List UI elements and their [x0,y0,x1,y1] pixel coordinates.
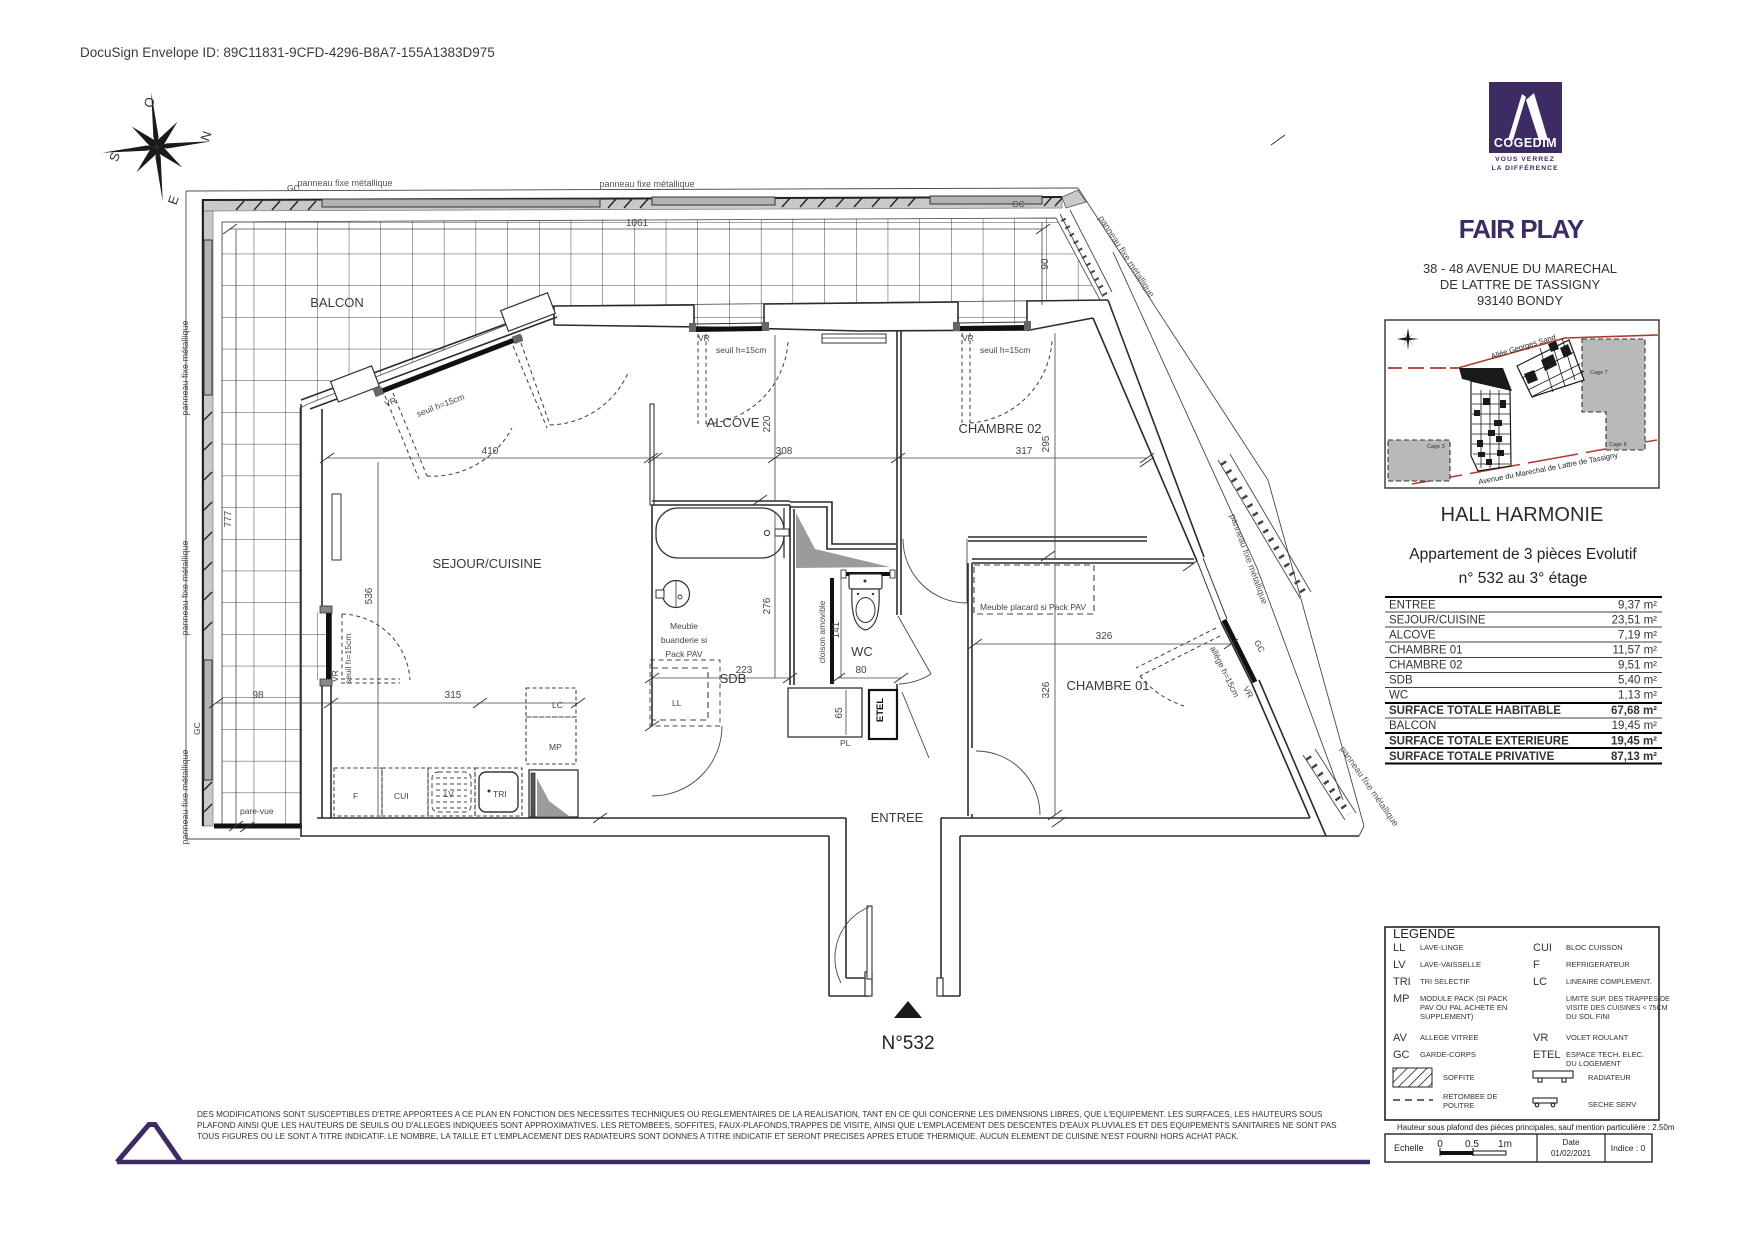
svg-text:ALLEGE VITREE: ALLEGE VITREE [1420,1033,1478,1042]
svg-text:90: 90 [1040,258,1051,270]
svg-text:1061: 1061 [626,218,649,229]
svg-text:1,13 m²: 1,13 m² [1618,690,1657,702]
svg-text:WC: WC [1389,690,1408,702]
svg-text:CUI: CUI [394,791,409,801]
svg-text:TRI SELECTIF: TRI SELECTIF [1420,977,1470,986]
svg-text:VR: VR [330,670,340,682]
svg-text:141: 141 [831,621,842,638]
svg-text:410: 410 [482,446,499,457]
svg-text:POUTRE: POUTRE [1443,1101,1474,1110]
svg-text:SDB: SDB [1389,675,1413,687]
svg-text:CHAMBRE 02: CHAMBRE 02 [1389,660,1463,672]
svg-text:ALCOVE: ALCOVE [1389,630,1436,642]
svg-text:Hauteur sous plafond des pièce: Hauteur sous plafond des pièces principa… [1397,1123,1675,1132]
svg-text:BLOC CUISSON: BLOC CUISSON [1566,943,1623,952]
svg-text:panneau fixe métallique: panneau fixe métallique [599,179,694,189]
svg-text:9,51 m²: 9,51 m² [1618,660,1657,672]
svg-text:23,51 m²: 23,51 m² [1612,615,1658,627]
svg-text:326: 326 [1096,631,1113,642]
svg-text:SUPPLEMENT): SUPPLEMENT) [1420,1012,1474,1021]
svg-text:REFRIGERATEUR: REFRIGERATEUR [1566,960,1630,969]
svg-text:CHAMBRE 02: CHAMBRE 02 [958,421,1041,436]
svg-text:1m: 1m [1498,1139,1512,1150]
svg-text:LA DIFFÉRENCE: LA DIFFÉRENCE [1491,163,1558,172]
svg-text:SURFACE TOTALE HABITABLE: SURFACE TOTALE HABITABLE [1389,705,1561,717]
svg-text:93140 BONDY: 93140 BONDY [1477,293,1563,308]
svg-text:326: 326 [1041,681,1052,698]
svg-text:ESPACE TECH. ELEC.: ESPACE TECH. ELEC. [1566,1050,1644,1059]
svg-text:MODULE PACK (SI PACK: MODULE PACK (SI PACK [1420,994,1508,1003]
svg-text:LV: LV [1393,959,1406,971]
svg-text:LV: LV [444,789,454,799]
svg-text:PL: PL [840,738,851,748]
svg-text:315: 315 [445,690,462,701]
svg-text:DU SOL FINI: DU SOL FINI [1566,1012,1610,1021]
svg-text:cloison amovible: cloison amovible [817,600,827,663]
svg-text:buanderie si: buanderie si [661,635,707,645]
svg-text:CUI: CUI [1533,942,1552,954]
svg-text:Meuble placard si Pack PAV: Meuble placard si Pack PAV [980,602,1086,612]
svg-text:SURFACE TOTALE EXTERIEURE: SURFACE TOTALE EXTERIEURE [1389,736,1569,748]
svg-text:AV: AV [1393,1032,1408,1044]
svg-text:n° 532 au 3° étage: n° 532 au 3° étage [1459,570,1588,587]
svg-text:GC: GC [1012,199,1025,209]
svg-text:276: 276 [762,597,773,614]
svg-text:VR: VR [698,333,710,343]
svg-text:DU LOGEMENT: DU LOGEMENT [1566,1059,1621,1068]
svg-text:ENTREE: ENTREE [1389,600,1436,612]
svg-text:LINEAIRE COMPLEMENT.: LINEAIRE COMPLEMENT. [1566,978,1652,986]
svg-text:LAVE-LINGE: LAVE-LINGE [1420,943,1464,952]
svg-text:DocuSign Envelope ID: 89C11831: DocuSign Envelope ID: 89C11831-9CFD-4296… [80,45,495,60]
svg-text:ENTREE: ENTREE [871,810,924,825]
svg-text:LL: LL [1393,942,1405,954]
svg-text:GARDE-CORPS: GARDE-CORPS [1420,1050,1476,1059]
svg-text:19,45 m²: 19,45 m² [1611,736,1657,748]
svg-text:panneau fixe métallique: panneau fixe métallique [180,540,190,635]
svg-text:Cage 7: Cage 7 [1590,370,1608,376]
svg-text:GC: GC [192,722,202,735]
svg-text:DES MODIFICATIONS SONT SUSCEPT: DES MODIFICATIONS SONT SUSCEPTIBLES D'ET… [197,1110,1323,1119]
svg-text:N°532: N°532 [881,1033,934,1054]
svg-text:Date: Date [1563,1138,1580,1147]
svg-text:VR: VR [962,333,974,343]
svg-text:panneau fixe métallique: panneau fixe métallique [180,320,190,415]
svg-text:ALCOVE: ALCOVE [707,415,760,430]
svg-text:67,68 m²: 67,68 m² [1611,705,1657,717]
svg-text:VOLET ROULANT: VOLET ROULANT [1566,1033,1629,1042]
svg-text:SOFFITE: SOFFITE [1443,1073,1475,1082]
svg-text:F: F [1533,959,1540,971]
svg-text:CHAMBRE 01: CHAMBRE 01 [1389,645,1463,657]
svg-text:F: F [353,791,358,801]
svg-text:LL: LL [672,698,682,708]
svg-text:TOUS FIGURES OU LE SONT A TITR: TOUS FIGURES OU LE SONT A TITRE INDICATI… [197,1132,1239,1141]
svg-text:LC: LC [552,700,563,710]
svg-text:19,45 m²: 19,45 m² [1612,720,1658,732]
svg-text:VR: VR [1533,1032,1548,1044]
svg-text:SURFACE TOTALE PRIVATIVE: SURFACE TOTALE PRIVATIVE [1389,751,1555,763]
svg-text:5,40 m²: 5,40 m² [1618,675,1657,687]
svg-text:Cage 6: Cage 6 [1609,442,1627,448]
svg-text:Meuble: Meuble [670,621,698,631]
svg-text:CHAMBRE 01: CHAMBRE 01 [1066,678,1149,693]
svg-text:38 - 48 AVENUE DU MARECHAL: 38 - 48 AVENUE DU MARECHAL [1423,261,1617,276]
svg-text:01/02/2021: 01/02/2021 [1551,1149,1592,1158]
svg-text:Cage 3: Cage 3 [1427,444,1445,450]
svg-text:COGEDIM: COGEDIM [1494,136,1557,150]
svg-text:7,19 m²: 7,19 m² [1618,630,1657,642]
svg-text:RADIATEUR: RADIATEUR [1588,1073,1631,1082]
svg-text:DE LATTRE DE TASSIGNY: DE LATTRE DE TASSIGNY [1440,277,1601,292]
svg-text:PLAFOND AINSI QUE LES HAUTEURS: PLAFOND AINSI QUE LES HAUTEURS DE SEUILS… [197,1121,1337,1130]
svg-text:GC: GC [1393,1049,1410,1061]
svg-text:seuil h=15cm: seuil h=15cm [343,634,353,684]
svg-text:TRI: TRI [1393,976,1411,988]
svg-text:MP: MP [1393,993,1410,1005]
svg-text:VISITE DES CUISINES < 75CM: VISITE DES CUISINES < 75CM [1566,1004,1668,1012]
svg-text:11,57 m²: 11,57 m² [1612,645,1657,657]
svg-text:TRI: TRI [493,789,507,799]
svg-text:RETOMBEE DE: RETOMBEE DE [1443,1092,1497,1101]
svg-text:Appartement de 3 pièces Evolut: Appartement de 3 pièces Evolutif [1409,546,1637,563]
svg-text:317: 317 [1016,446,1033,457]
svg-text:SECHE SERV: SECHE SERV [1588,1100,1636,1109]
svg-text:220: 220 [762,415,773,432]
svg-text:seuil h=15cm: seuil h=15cm [980,345,1030,355]
svg-text:Echelle: Echelle [1394,1143,1424,1153]
svg-text:SEJOUR/CUISINE: SEJOUR/CUISINE [1389,615,1486,627]
svg-text:Pack PAV: Pack PAV [665,649,702,659]
svg-text:9,37 m²: 9,37 m² [1618,600,1657,612]
svg-text:LAVE-VAISSELLE: LAVE-VAISSELLE [1420,960,1481,969]
svg-text:SDB: SDB [720,671,747,686]
svg-text:MP: MP [549,742,562,752]
svg-text:PAV OU PAL ACHETE EN: PAV OU PAL ACHETE EN [1420,1003,1507,1012]
svg-text:Indice : 0: Indice : 0 [1611,1143,1646,1153]
svg-text:BALCON: BALCON [1389,720,1436,732]
svg-text:ETEL: ETEL [1533,1049,1561,1061]
svg-text:536: 536 [364,587,375,604]
svg-text:65: 65 [834,707,845,719]
svg-text:WC: WC [851,644,873,659]
svg-text:98: 98 [252,690,264,701]
svg-text:SEJOUR/CUISINE: SEJOUR/CUISINE [432,556,541,571]
svg-text:panneau fixe métallique: panneau fixe métallique [297,178,392,188]
svg-text:87,13 m²: 87,13 m² [1611,751,1657,763]
svg-text:BALCON: BALCON [310,295,363,310]
svg-text:seuil h=15cm: seuil h=15cm [716,345,766,355]
svg-text:295: 295 [1041,435,1052,452]
svg-text:LEGENDE: LEGENDE [1393,926,1455,941]
svg-text:pare-vue: pare-vue [240,806,274,816]
svg-text:FAIR PLAY: FAIR PLAY [1459,214,1584,244]
svg-text:GC: GC [287,183,300,193]
svg-text:777: 777 [223,510,234,527]
svg-text:HALL HARMONIE: HALL HARMONIE [1441,504,1604,526]
svg-text:0.5: 0.5 [1465,1139,1479,1150]
svg-text:panneau fixe métallique: panneau fixe métallique [180,749,190,844]
svg-text:80: 80 [855,665,867,676]
svg-text:ETEL: ETEL [875,698,886,722]
svg-text:LC: LC [1533,976,1547,988]
svg-text:VOUS VERREZ: VOUS VERREZ [1495,156,1555,163]
svg-text:LIMITE SUP. DES TRAPPES DE: LIMITE SUP. DES TRAPPES DE [1566,995,1670,1003]
